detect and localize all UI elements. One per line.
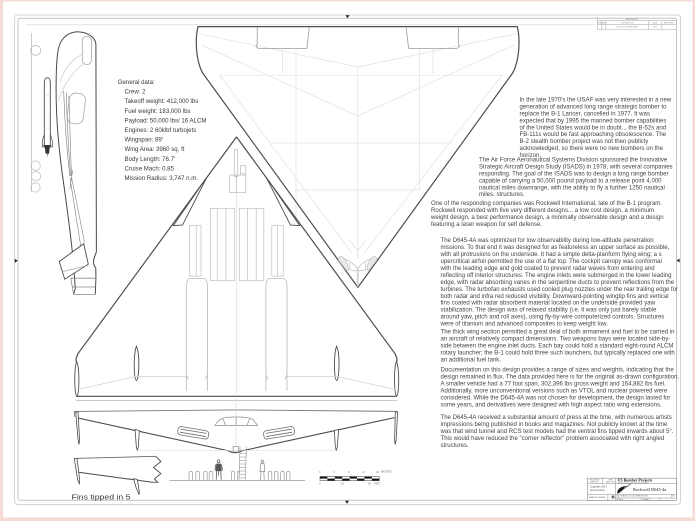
svg-text:was that wind tunnel and RCS t: was that wind tunnel and RCS test models…	[440, 429, 674, 435]
svg-text:of the United States would be: of the United States would be in doubt..…	[520, 125, 667, 131]
svg-text:turbines. The turbofan exhaust: turbines. The turbofan exhausts used coo…	[441, 287, 679, 293]
svg-text:PRODUCTION RELEASE: PRODUCTION RELEASE	[617, 26, 639, 29]
svg-text:side between the engine inlet: side between the engine inlet ducts. Eac…	[441, 344, 674, 350]
svg-text:Fins tipped in 5: Fins tipped in 5	[72, 495, 131, 502]
svg-text:B-2 stealth bomber project was: B-2 stealth bomber project was not then …	[520, 139, 650, 145]
svg-text:Takeoff weight: 412,000 lbs: Takeoff weight: 412,000 lbs	[125, 98, 199, 105]
svg-text:www.aerospaceprojectsreview.co: www.aerospaceprojectsreview.com	[618, 481, 649, 484]
svg-text:FB-111s would be fast approach: FB-111s would be fast approaching obsole…	[520, 132, 667, 138]
svg-text:DWG NO: DWG NO	[590, 482, 599, 484]
svg-text:impressions being published in: impressions being published in books and…	[441, 422, 669, 428]
svg-text:Documentation on this design p: Documentation on this design provides a …	[441, 368, 675, 374]
svg-text:fins coated with radar absorbe: fins coated with radar absorbent materia…	[441, 301, 656, 307]
svg-text:The Air Force Aeronautical Sys: The Air Force Aeronautical Systems Divis…	[479, 158, 668, 164]
svg-text:Strategic Aircraft Design Stud: Strategic Aircraft Design Study (ISADS) …	[479, 164, 673, 170]
svg-text:acknowledged, so there were no: acknowledged, so there were no new bombe…	[520, 146, 664, 152]
svg-text:an aircraft of relatively comp: an aircraft of relatively compact dimens…	[441, 337, 671, 343]
svg-text:DATE: DATE	[653, 21, 658, 24]
svg-text:DRAWING NO: DRAWING NO	[635, 495, 649, 498]
svg-text:structures.: structures.	[441, 443, 470, 449]
svg-text:design remained in flux. The d: design remained in flux. The data provid…	[441, 375, 680, 381]
svg-text:Scott Lowther: Scott Lowther	[590, 489, 605, 492]
svg-text:with the leading edge and gold: with the leading edge and gold coated to…	[440, 266, 655, 272]
svg-text:Engines: 2 60klbf turbojets: Engines: 2 60klbf turbojets	[125, 127, 197, 134]
svg-text:General data:: General data:	[118, 79, 155, 86]
svg-text:Rockwell D645-4a: Rockwell D645-4a	[633, 487, 666, 492]
svg-text:generation of advanced long ra: generation of advanced long range strate…	[520, 104, 668, 110]
svg-text:Wingspan: 89': Wingspan: 89'	[125, 137, 163, 144]
svg-text:DESCRIPTION: DESCRIPTION	[621, 22, 634, 24]
svg-text:Cruise Mach: 0.85: Cruise Mach: 0.85	[125, 165, 175, 172]
svg-text:APPROVED: APPROVED	[664, 21, 675, 24]
svg-text:Payload: 50,000 lbs/ 16 ALCM: Payload: 50,000 lbs/ 16 ALCM	[125, 117, 207, 124]
svg-text:reflecting off interior struct: reflecting off interior structures. The …	[441, 273, 672, 279]
svg-text:Fuel weight: 183,000 lbs: Fuel weight: 183,000 lbs	[125, 108, 191, 115]
svg-text:The D645-4A was optimized for: The D645-4A was optimized for low observ…	[441, 238, 654, 244]
svg-text:with all protrusions on the un: with all protrusions on the underside. I…	[440, 252, 662, 258]
svg-text:Crew: 2: Crew: 2	[125, 89, 147, 96]
svg-text:In the late 1970's the USAF wa: In the late 1970's the USAF was very int…	[520, 98, 672, 104]
svg-text:The D645-4A received a substan: The D645-4A received a substantial amoun…	[441, 415, 672, 421]
svg-text:Additionally, more unconventio: Additionally, more unconventional versio…	[441, 389, 668, 395]
svg-text:Rockwell responded with five v: Rockwell responded with five very differ…	[431, 208, 654, 214]
svg-text:nautical miles downrange, with: nautical miles downrange, with the abili…	[479, 185, 665, 191]
svg-text:responding. The goal of the IS: responding. The goal of the ISADS was to…	[479, 171, 668, 177]
svg-text:both radar and infra red reduc: both radar and infra red reduced visibil…	[441, 294, 669, 300]
svg-text:SCALE: SCALE	[616, 498, 623, 501]
svg-text:Mission Radius: 3,747 n.m.: Mission Radius: 3,747 n.m.	[125, 175, 199, 182]
svg-text:edge, with radar absorbing van: edge, with radar absorbing vanes in the …	[441, 280, 675, 286]
svg-text:miles. structures.: miles. structures.	[479, 192, 525, 198]
svg-text:SCALE 1/72: SCALE 1/72	[620, 495, 632, 498]
svg-text:around yaw, pitch and roll axe: around yaw, pitch and roll axes), using …	[441, 315, 665, 321]
svg-text:rotary launcher; the B-1 could: rotary launcher; the B-1 could hold thre…	[441, 351, 675, 357]
svg-text:One of the responding companie: One of the responding companies was Rock…	[431, 201, 662, 207]
svg-text:This would have reduced the "c: This would have reduced the "corner refl…	[441, 436, 665, 442]
svg-text:REVISIONS: REVISIONS	[626, 19, 639, 21]
svg-text:METERS: METERS	[381, 470, 392, 474]
svg-text:featuring a laser weapon for s: featuring a laser weapon for self defens…	[431, 222, 542, 228]
svg-text:considered. While the D645-4A: considered. While the D645-4A was not ch…	[441, 396, 671, 402]
svg-text:Wing Area: 3960 sq. ft: Wing Area: 3960 sq. ft	[125, 146, 185, 153]
svg-text:REV LTR: REV LTR	[606, 482, 615, 484]
svg-text:were of titanium and advanced: were of titanium and advanced composites…	[440, 322, 609, 328]
svg-text:missions. To that end it was d: missions. To that end it was designed fo…	[441, 245, 670, 251]
svg-text:expected that by 1995 the mann: expected that by 1995 the manned bomber …	[520, 118, 667, 124]
svg-text:Body Length: 76.7': Body Length: 76.7'	[125, 156, 176, 163]
svg-text:weight design, a best performa: weight design, a best performance design…	[430, 215, 664, 221]
svg-text:an additional fuel tank.: an additional fuel tank.	[441, 358, 502, 364]
svg-text:replace the B-1 Lancer, cancel: replace the B-1 Lancer, cancelled in 197…	[520, 111, 650, 117]
svg-text:2014: 2014	[653, 27, 657, 29]
svg-text:The thick wing section permitt: The thick wing section permitted a great…	[441, 330, 675, 336]
svg-text:capable of carrying a 50,000 p: capable of carrying a 50,000 pound paylo…	[479, 178, 662, 184]
svg-text:A smaller vehicle had a 77 foo: A smaller vehicle had a 77 foot span, 30…	[441, 382, 667, 388]
svg-text:stabilization. The design was: stabilization. The design was of relaxed…	[441, 308, 658, 314]
svg-text:upercritical airfoil permitted: upercritical airfoil permitted the use o…	[441, 259, 662, 265]
svg-text:some years, and derivatives we: some years, and derivatives were designe…	[441, 402, 662, 408]
svg-text:SAMPLE GRADE: SAMPLE GRADE	[589, 496, 606, 499]
svg-text:FEET: FEET	[374, 482, 381, 486]
svg-text:SHEET 1: SHEET 1	[643, 499, 652, 501]
